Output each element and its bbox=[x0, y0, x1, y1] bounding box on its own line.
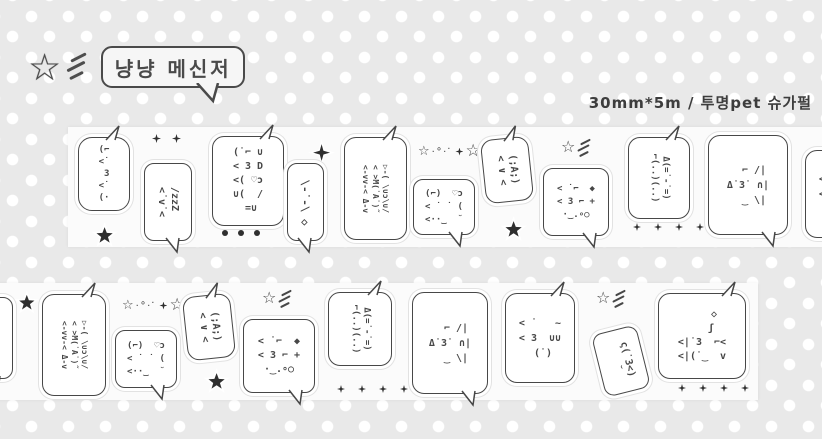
kaomoji-line: (· bbox=[99, 192, 110, 204]
kaomoji-line: ‿ \| bbox=[429, 351, 471, 366]
kaomoji-line: <-vv-< Δ-v bbox=[59, 321, 69, 369]
kaomoji-line: \-˙-\ ◇ bbox=[299, 179, 312, 225]
kaomoji-line: <˙ bbox=[99, 156, 110, 168]
black-star-icon bbox=[91, 222, 118, 249]
kaomoji-lines: < ˙⌐ ◆< 3 ⌐ +·‿.∘○ bbox=[258, 335, 300, 377]
dot-icon bbox=[379, 385, 387, 393]
sticker-bubble-blowing-cat: < ˙⌐ ◆< 3 ⌐ +·‿.∘○ bbox=[243, 319, 315, 393]
kaomoji: ς(˙3<) ˘ bbox=[592, 326, 650, 397]
motion-lines-icon bbox=[277, 290, 294, 310]
kaomoji-line: Δ˙3˙ ∩| bbox=[429, 336, 471, 351]
sticker-chat-cats: ▷-( \∪ɔ\∪/< >M(˙A˙)˝<-vv-< Δ-v bbox=[42, 294, 106, 396]
kaomoji: ▷-( \∪ɔ\∪/< >M(˙A˙)˝<-vv-< Δ-v bbox=[345, 138, 406, 239]
dot-row-icon bbox=[337, 385, 408, 393]
star-icon: ☆ bbox=[262, 290, 276, 306]
sparkle-pair-icon bbox=[152, 134, 181, 143]
kaomoji-line: ▷-( \∪ɔ\∪/ bbox=[79, 321, 89, 369]
sticker-book-cat: ⌐ /|Δ˙3˙ ∩| ‿ \| bbox=[412, 292, 488, 394]
small-star-icon: ☆ bbox=[418, 145, 430, 158]
kaomoji-lines: ⌐ /|Δ˙3˙ ∩| ‿ \| bbox=[429, 321, 471, 366]
kaomoji-line: (˙) bbox=[519, 346, 561, 361]
kaomoji: ◇ ʃ<|˙3 ⌐<<|(˙‿ v bbox=[659, 294, 745, 378]
brand-title: 냥냥 메신저 bbox=[115, 53, 232, 82]
black-sparkle-icon-fill bbox=[313, 144, 330, 161]
kaomoji-line: <··‿ ˘ bbox=[127, 366, 165, 379]
kaomoji: < ˙ ~< 3 ∪∪ (˙) bbox=[806, 151, 822, 237]
dot-icon bbox=[172, 134, 181, 143]
sticker-sleepy-cat: /zzZ <˙v˙< bbox=[144, 163, 192, 241]
kaomoji-line: Δ˙3˙ ∩| bbox=[727, 178, 769, 193]
kaomoji-lines: < ˙⌐ ◆< 3 ⌐ +·‿.∘○ bbox=[557, 183, 595, 222]
kaomoji-line: ◇ bbox=[678, 308, 726, 322]
kaomoji-line: Δ(=˙-˙=) bbox=[360, 305, 371, 354]
kaomoji-line: < >M(˙A˙)˝ bbox=[370, 164, 380, 212]
motion-lines-icon bbox=[576, 139, 593, 159]
black-star-icon-fill bbox=[19, 295, 35, 311]
star-trail-icon: ☆.∘.·☆ bbox=[418, 143, 481, 160]
black-star-icon-fill bbox=[505, 221, 522, 238]
brand-mark: ☆ 냥냥 메신저 bbox=[28, 46, 245, 88]
dust-trail: .∘.· bbox=[432, 144, 452, 155]
sticker-tongue-cat: (˙⌐ ∪< 3 D<( ♡ɔ∪( / =∪ bbox=[212, 136, 284, 226]
kaomoji: (˙⌐ ∪< 3 D<( ♡ɔ∪( / =∪ bbox=[213, 137, 283, 225]
kaomoji-line: Δ(=˙-˙=) bbox=[659, 154, 670, 203]
kaomoji-line: < 3 ⌐ + bbox=[258, 349, 300, 363]
sticker-shy-cat: \-˙-\ ◇ bbox=[0, 297, 13, 379]
kaomoji: ⌐ /|Δ˙3˙ ∩| ‿ \| bbox=[413, 293, 487, 393]
kaomoji-line: ∪( / bbox=[233, 188, 263, 202]
kaomoji-line: < ˙ ~ bbox=[519, 316, 561, 331]
kaomoji: Δ(=˙-˙=)⌐(..)(..) bbox=[329, 293, 391, 365]
sticker-cry-cat: (;A;)< ∨ < bbox=[182, 293, 236, 362]
kaomoji-line: ʃ bbox=[678, 322, 726, 336]
kaomoji-line: < ˙⌐ ◆ bbox=[557, 183, 595, 196]
kaomoji: (;A;)< ∨ < bbox=[183, 294, 235, 360]
black-star-icon bbox=[500, 216, 527, 243]
kaomoji: (⌐<˙ 3<˙(· bbox=[79, 138, 129, 210]
star-icon: ☆ bbox=[28, 49, 61, 86]
kaomoji-line: ·‿.∘○ bbox=[258, 363, 300, 377]
sticker-book-cat: ⌐ /|Δ˙3˙ ∩| ‿ \| bbox=[708, 135, 788, 235]
motion-lines-icon bbox=[63, 51, 91, 83]
kaomoji: ▷-( \∪ɔ\∪/< >M(˙A˙)˝<-vv-< Δ-v bbox=[43, 295, 105, 395]
kaomoji-line: < ˙ ˙ ( bbox=[127, 353, 165, 366]
kaomoji-line: ·‿.∘○ bbox=[557, 209, 595, 222]
kaomoji-line: < >M(˙A˙)˝ bbox=[69, 321, 79, 369]
dot-icon bbox=[678, 384, 686, 392]
kaomoji-lines: ▷-( \∪ɔ\∪/< >M(˙A˙)˝<-vv-< Δ-v bbox=[360, 164, 390, 212]
sticker-shy-cat: \-˙-\ ◇ bbox=[287, 163, 324, 241]
sticker-twin-cats: Δ(=˙-˙=)⌐(..)(..) bbox=[628, 137, 690, 219]
kaomoji: < ˙⌐ ◆< 3 ⌐ +·‿.∘○ bbox=[544, 169, 608, 235]
tape-strip-top: (⌐<˙ 3<˙(·/zzZ <˙v˙<(˙⌐ ∪< 3 D<( ♡ɔ∪( / … bbox=[68, 127, 822, 247]
kaomoji-lines: ⌐ /|Δ˙3˙ ∩| ‿ \| bbox=[727, 163, 769, 208]
dot-icon bbox=[400, 385, 408, 393]
spark-icon bbox=[455, 148, 463, 156]
kaomoji: < ˙⌐ ◆< 3 ⌐ +·‿.∘○ bbox=[244, 320, 314, 392]
sticker-wink-cat: ◇ ʃ<|˙3 ⌐<<|(˙‿ v bbox=[658, 293, 746, 379]
product-size-label: 30mm*5m / 투명pet 슈가펄 bbox=[589, 92, 812, 113]
dot-icon bbox=[238, 230, 244, 236]
kaomoji-line: <( ♡ɔ bbox=[233, 174, 263, 188]
dot-icon bbox=[699, 384, 707, 392]
kaomoji-line: <|˙3 ⌐< bbox=[678, 336, 726, 350]
kaomoji-line: < ˙ ˙ ( bbox=[425, 201, 463, 214]
kaomoji-lines: (;A;)< ∨ < bbox=[493, 154, 520, 186]
kaomoji-line: (⌐) ♡ɔ bbox=[127, 340, 165, 353]
kaomoji: (⌐) ♡ɔ< ˙ ˙ (<··‿ ˘ bbox=[116, 331, 176, 387]
kaomoji-line: <··‿ ˘ bbox=[425, 214, 463, 227]
kaomoji-line: ‿ \| bbox=[727, 193, 769, 208]
dot-row-icon bbox=[678, 384, 749, 392]
shooting-star-icon: ☆ bbox=[262, 290, 294, 310]
dot-icon bbox=[633, 223, 641, 231]
kaomoji-lines: ▷-( \∪ɔ\∪/< >M(˙A˙)˝<-vv-< Δ-v bbox=[59, 321, 89, 369]
sticker-cry-cat: (;A;)< ∨ < bbox=[480, 136, 534, 205]
kaomoji-lines: < ˙ ~< 3 ∪∪ (˙) bbox=[519, 316, 561, 361]
kaomoji-line: (⌐) ♡ɔ bbox=[425, 188, 463, 201]
kaomoji-line: (⌐ bbox=[99, 144, 110, 156]
kaomoji-line: ⌐ /| bbox=[727, 163, 769, 178]
kaomoji-line: =∪ bbox=[233, 202, 263, 216]
kaomoji-line: <˙v˙< bbox=[155, 187, 168, 217]
kaomoji-line: <-vv-< Δ-v bbox=[360, 164, 370, 212]
dot-icon bbox=[720, 384, 728, 392]
product-image: ☆ 냥냥 메신저 30mm*5m / 투명pet 슈가펄 (⌐<˙ 3<˙(·/… bbox=[0, 0, 822, 439]
kaomoji-lines: ς(˙3<) ˘ bbox=[605, 341, 637, 382]
black-star-icon bbox=[14, 290, 40, 316]
kaomoji-line: <˙ bbox=[99, 180, 110, 192]
dot-icon bbox=[696, 223, 704, 231]
kaomoji: /zzZ <˙v˙< bbox=[145, 164, 191, 240]
dot-icon bbox=[358, 385, 366, 393]
kaomoji-line: < 3 ∪∪ bbox=[519, 331, 561, 346]
sticker-bubble-blowing-cat: < ˙⌐ ◆< 3 ⌐ +·‿.∘○ bbox=[543, 168, 609, 236]
star-icon: ☆ bbox=[561, 139, 575, 155]
shooting-star-icon: ☆ bbox=[561, 139, 593, 159]
black-star-icon bbox=[203, 368, 230, 395]
kaomoji: (;A;)< ∨ < bbox=[481, 137, 533, 203]
kaomoji-lines: (⌐) ♡ɔ< ˙ ˙ (<··‿ ˘ bbox=[425, 188, 463, 227]
kaomoji-lines: (˙⌐ ∪< 3 D<( ♡ɔ∪( / =∪ bbox=[233, 146, 263, 216]
dot-icon bbox=[741, 384, 749, 392]
kaomoji-line: < 3 ⌐ + bbox=[557, 196, 595, 209]
dot-icon bbox=[675, 223, 683, 231]
dust-trail: .∘.· bbox=[136, 298, 156, 309]
sticker-kiss-uu-cat: < ˙ ~< 3 ∪∪ (˙) bbox=[505, 293, 575, 383]
kaomoji-lines: (;A;)< ∨ < bbox=[195, 311, 222, 343]
dot-icon bbox=[337, 385, 345, 393]
sticker-heart-cat: (⌐) ♡ɔ< ˙ ˙ (<··‿ ˘ bbox=[413, 179, 475, 235]
kaomoji-line: ⌐ /| bbox=[429, 321, 471, 336]
dot-icon bbox=[654, 223, 662, 231]
tape-strip-bottom: \-˙-\ ◇▷-( \∪ɔ\∪/< >M(˙A˙)˝<-vv-< Δ-v☆.∘… bbox=[0, 283, 758, 400]
dot-icon bbox=[222, 230, 228, 236]
dot-row-icon bbox=[633, 223, 704, 231]
kaomoji-line: ⌐(..)(..) bbox=[648, 154, 659, 203]
sticker-chat-cats: ▷-( \∪ɔ\∪/< >M(˙A˙)˝<-vv-< Δ-v bbox=[344, 137, 407, 240]
dot-row-icon bbox=[222, 230, 260, 236]
kaomoji-line: ▷-( \∪ɔ\∪/ bbox=[380, 164, 390, 212]
sticker-heart-cat: (⌐) ♡ɔ< ˙ ˙ (<··‿ ˘ bbox=[115, 330, 177, 388]
dot-icon bbox=[254, 230, 260, 236]
sticker-kiss-uu-cat: < ˙ ~< 3 ∪∪ (˙) bbox=[805, 150, 822, 238]
kaomoji-lines: /zzZ <˙v˙< bbox=[155, 187, 181, 217]
shooting-star-icon: ☆ bbox=[596, 290, 628, 310]
kaomoji: (⌐) ♡ɔ< ˙ ˙ (<··‿ ˘ bbox=[414, 180, 474, 234]
spark-icon bbox=[159, 302, 167, 310]
kaomoji-lines: \-˙-\ ◇ bbox=[0, 315, 1, 361]
kaomoji: Δ(=˙-˙=)⌐(..)(..) bbox=[629, 138, 689, 218]
bubble-tail-icon bbox=[193, 83, 223, 105]
kaomoji-lines: ◇ ʃ<|˙3 ⌐<<|(˙‿ v bbox=[678, 308, 726, 364]
kaomoji: \-˙-\ ◇ bbox=[0, 298, 12, 378]
sticker-twin-cats: Δ(=˙-˙=)⌐(..)(..) bbox=[328, 292, 392, 366]
kaomoji-lines: Δ(=˙-˙=)⌐(..)(..) bbox=[349, 305, 371, 354]
big-star-icon: ☆ bbox=[465, 143, 480, 160]
motion-lines-icon bbox=[611, 290, 628, 310]
kaomoji-line: < 3 D bbox=[233, 160, 263, 174]
kaomoji-lines: Δ(=˙-˙=)⌐(..)(..) bbox=[648, 154, 670, 203]
kaomoji-line: < ˙⌐ ◆ bbox=[258, 335, 300, 349]
black-star-icon-fill bbox=[96, 227, 113, 244]
black-star-icon-fill bbox=[208, 373, 225, 390]
kaomoji-lines: (⌐) ♡ɔ< ˙ ˙ (<··‿ ˘ bbox=[127, 340, 165, 379]
star-trail-icon: ☆.∘.·☆ bbox=[122, 297, 185, 314]
kaomoji: ⌐ /|Δ˙3˙ ∩| ‿ \| bbox=[709, 136, 787, 234]
sticker-tilted-cat: ς(˙3<) ˘ bbox=[591, 324, 651, 397]
kaomoji: < ˙ ~< 3 ∪∪ (˙) bbox=[506, 294, 574, 382]
kaomoji-line: (˙⌐ ∪ bbox=[233, 146, 263, 160]
brand-bubble: 냥냥 메신저 bbox=[101, 46, 245, 88]
kaomoji-line: /zzZ bbox=[168, 187, 181, 217]
kaomoji-lines: \-˙-\ ◇ bbox=[299, 179, 312, 225]
kaomoji-line: \-˙-\ ◇ bbox=[0, 315, 1, 361]
kaomoji-lines: (⌐<˙ 3<˙(· bbox=[99, 144, 110, 204]
kaomoji-line: 3 bbox=[99, 168, 110, 180]
sticker-kiss-cat: (⌐<˙ 3<˙(· bbox=[78, 137, 130, 211]
star-icon: ☆ bbox=[596, 290, 610, 306]
dot-icon bbox=[152, 134, 161, 143]
kaomoji-line: ⌐(..)(..) bbox=[349, 305, 360, 354]
small-star-icon: ☆ bbox=[122, 299, 134, 312]
kaomoji: \-˙-\ ◇ bbox=[288, 164, 323, 240]
kaomoji-line: <|(˙‿ v bbox=[678, 350, 726, 364]
